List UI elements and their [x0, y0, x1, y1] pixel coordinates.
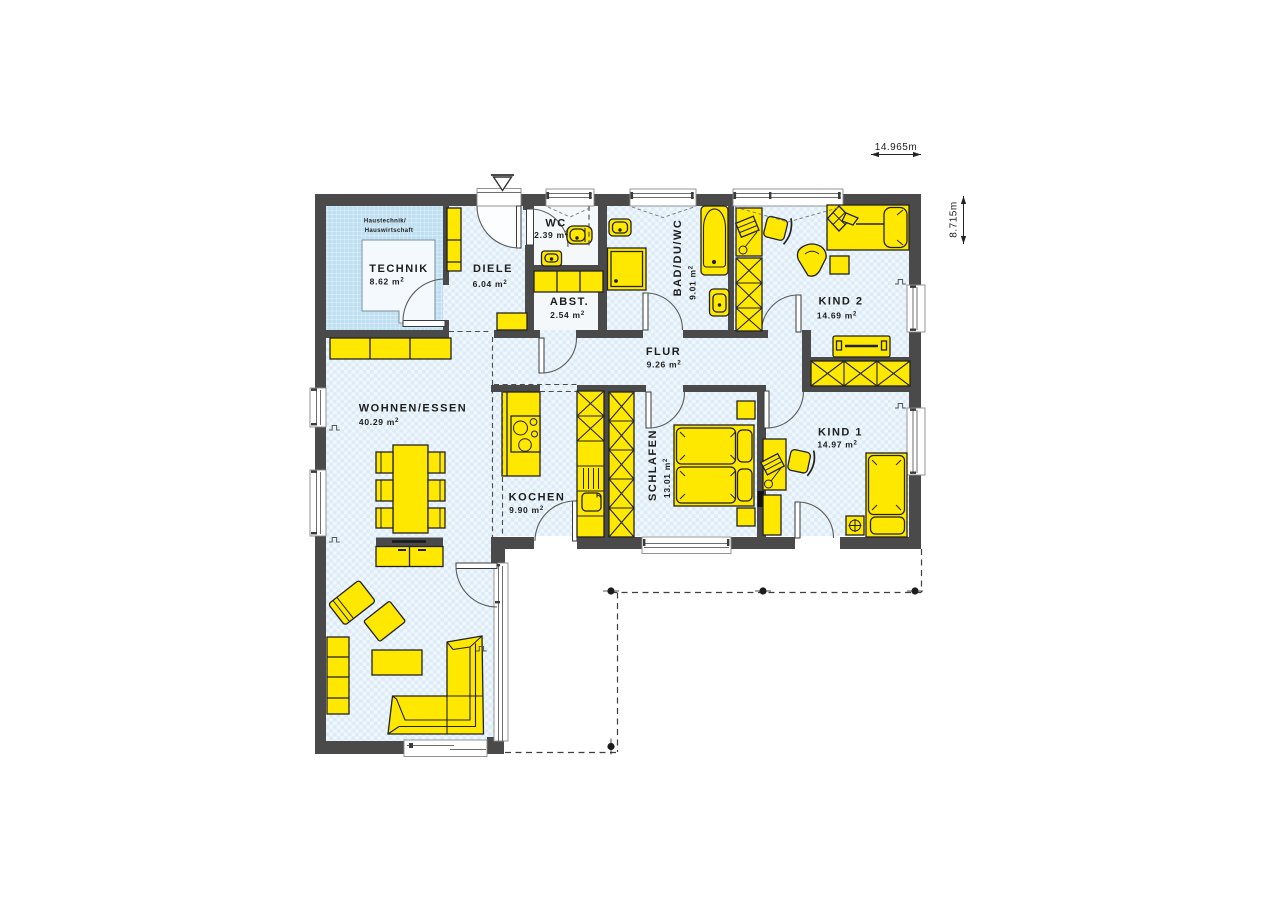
- svg-text:Haustechnik/: Haustechnik/: [364, 219, 406, 225]
- svg-text:8.715m: 8.715m: [949, 201, 960, 237]
- svg-text:2.54 m2: 2.54 m2: [550, 310, 585, 320]
- svg-text:SCHLAFEN: SCHLAFEN: [647, 429, 659, 501]
- svg-text:6.04 m2: 6.04 m2: [473, 279, 508, 289]
- svg-text:KIND 2: KIND 2: [818, 296, 863, 308]
- svg-text:KOCHEN: KOCHEN: [509, 492, 566, 504]
- svg-text:BAD/DU/WC: BAD/DU/WC: [672, 219, 684, 297]
- svg-text:8.62 m2: 8.62 m2: [370, 277, 405, 287]
- svg-text:FLUR: FLUR: [646, 346, 681, 358]
- svg-text:40.29 m2: 40.29 m2: [359, 417, 399, 427]
- svg-text:14.97 m2: 14.97 m2: [817, 440, 857, 450]
- svg-text:14.965m: 14.965m: [875, 142, 917, 153]
- svg-text:DIELE: DIELE: [473, 263, 513, 275]
- svg-text:KIND 1: KIND 1: [818, 427, 863, 439]
- svg-text:9.26 m2: 9.26 m2: [647, 360, 682, 370]
- svg-text:9.90 m2: 9.90 m2: [509, 505, 544, 515]
- svg-text:14.69 m2: 14.69 m2: [817, 311, 857, 321]
- svg-text:13.01 m2: 13.01 m2: [662, 458, 672, 498]
- svg-text:9.01 m2: 9.01 m2: [688, 265, 698, 300]
- svg-text:WC: WC: [545, 218, 566, 230]
- svg-text:Hauswirtschaft: Hauswirtschaft: [365, 228, 414, 234]
- svg-text:ABST.: ABST.: [550, 296, 589, 308]
- svg-text:2.39 m2: 2.39 m2: [534, 230, 569, 240]
- svg-text:WOHNEN/ESSEN: WOHNEN/ESSEN: [359, 403, 467, 415]
- svg-text:TECHNIK: TECHNIK: [369, 263, 428, 275]
